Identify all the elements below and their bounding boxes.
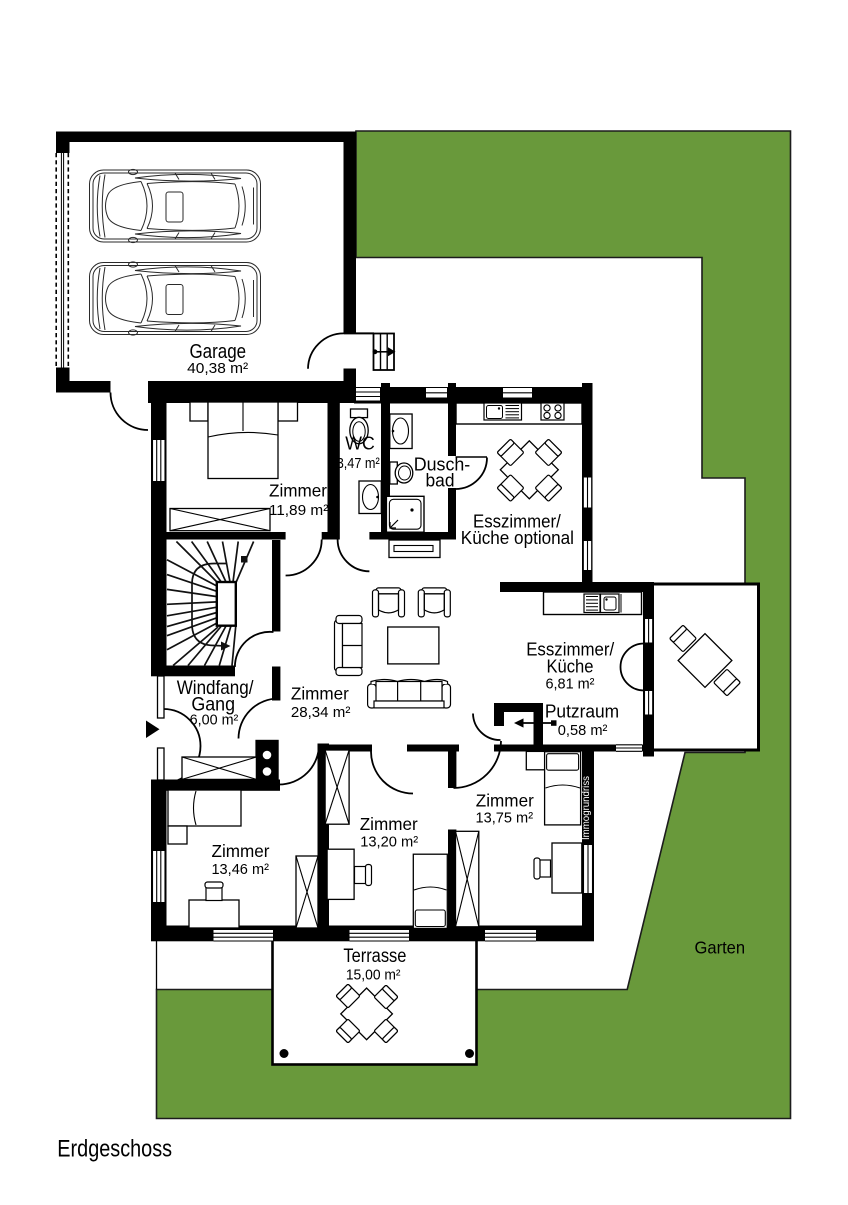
svg-text:Garten: Garten bbox=[695, 937, 746, 957]
svg-text:bad: bad bbox=[426, 470, 455, 491]
svg-text:Küche optional: Küche optional bbox=[461, 527, 574, 548]
svg-text:13,20 m²: 13,20 m² bbox=[360, 833, 418, 850]
svg-text:13,46 m²: 13,46 m² bbox=[211, 861, 269, 878]
svg-text:Putzraum: Putzraum bbox=[545, 701, 619, 722]
svg-text:Zimmer: Zimmer bbox=[212, 841, 270, 861]
svg-text:Zimmer: Zimmer bbox=[476, 791, 534, 811]
svg-text:Terrasse: Terrasse bbox=[343, 946, 406, 967]
svg-text:13,75 m²: 13,75 m² bbox=[476, 810, 534, 827]
svg-text:Zimmer: Zimmer bbox=[360, 814, 418, 834]
svg-text:6,00 m²: 6,00 m² bbox=[190, 713, 239, 729]
svg-text:3,47 m²: 3,47 m² bbox=[337, 455, 380, 472]
svg-text:0,58 m²: 0,58 m² bbox=[558, 722, 608, 739]
svg-text:28,34 m²: 28,34 m² bbox=[291, 704, 351, 721]
svg-text:6,81 m²: 6,81 m² bbox=[546, 676, 595, 693]
svg-text:40,38 m²: 40,38 m² bbox=[187, 360, 248, 377]
svg-text:Zimmer: Zimmer bbox=[291, 683, 349, 703]
svg-text:15,00 m²: 15,00 m² bbox=[346, 968, 401, 984]
svg-text:WC: WC bbox=[345, 433, 375, 454]
svg-text:Zimmer: Zimmer bbox=[269, 481, 327, 501]
svg-text:Erdgeschoss: Erdgeschoss bbox=[57, 1136, 172, 1163]
svg-text:Immogrundriss: Immogrundriss bbox=[580, 776, 592, 840]
svg-text:Küche: Küche bbox=[547, 657, 594, 677]
svg-text:11,89 m²: 11,89 m² bbox=[269, 502, 329, 519]
